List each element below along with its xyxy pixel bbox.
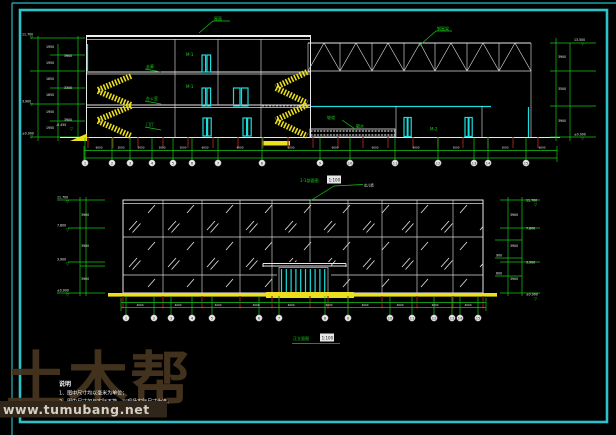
elevation-marker-icon: ▽	[534, 202, 538, 207]
dimension-text: 3900	[558, 55, 566, 59]
dimension-text: 4000	[326, 303, 333, 307]
drawing-title: 正立面图	[293, 335, 309, 341]
svg-text:10: 10	[348, 161, 353, 165]
cad-drawing: 1950 1950 1650 1650 1950 1950 3900 3300 …	[0, 0, 616, 435]
dimension-text: 6000	[202, 146, 209, 150]
dimension-text: 3500	[558, 87, 566, 91]
section-building	[60, 36, 560, 138]
svg-text:15: 15	[524, 161, 529, 165]
dimension-text: 3000	[502, 146, 509, 150]
dimension-text: 3000	[159, 146, 166, 150]
leader-label: M-1	[186, 52, 194, 57]
dimension-text: 4000	[253, 303, 260, 307]
dimension-text: 1950	[46, 126, 54, 130]
elevation-bottom-dimensions: 4000 4000 4000 4000 4000 4000 4000 4000 …	[121, 296, 486, 315]
svg-text:13: 13	[450, 316, 455, 320]
dimension-text: 1950	[46, 61, 54, 65]
elevation-axis-bubbles: 1 2 3 4 5 6 7 8 9 10 11 12 13 14 15	[123, 315, 481, 321]
dimension-text: 6000	[332, 146, 339, 150]
dimension-text: 1950	[46, 45, 54, 49]
leader-label: 屋面	[214, 15, 222, 21]
leader-label: 钢屋架	[437, 25, 449, 31]
level-text: 7.800	[57, 224, 66, 228]
dimension-text: 4000	[432, 303, 439, 307]
cad-viewport[interactable]: 1950 1950 1650 1650 1950 1950 3900 3300 …	[0, 0, 616, 435]
dimension-text: 3900	[510, 213, 518, 217]
dimension-text: 4000	[397, 303, 404, 307]
drawing-title: 1-1剖面图	[300, 177, 319, 183]
svg-text:15: 15	[476, 316, 481, 320]
section-axis-bubbles: 1 2 3 4 5 6 7 8 9 10 11 12 13 14 15	[82, 160, 529, 166]
dimension-text: 3900	[510, 277, 518, 281]
dimension-text: 3900	[558, 119, 566, 123]
elevation-right-dimension-chain: 3900 3900 3900 900 600 11.700 ▽ 7.800 3.…	[495, 197, 540, 301]
elevation-marker-icon: ▽	[30, 35, 34, 40]
scale-text: 1:100	[329, 178, 341, 183]
svg-text:3: 3	[129, 161, 131, 165]
svg-text:12: 12	[432, 316, 437, 320]
dimension-text: 3900	[64, 54, 72, 58]
svg-text:2: 2	[111, 161, 113, 165]
dimension-text: 3000	[453, 146, 460, 150]
section-bottom-dimensions: 6000 3000 3000 3000 3000 6000 6000 6000 …	[84, 138, 557, 163]
svg-text:13: 13	[472, 161, 477, 165]
level-text: 3.900	[526, 261, 535, 265]
leader-label: 散水	[356, 123, 364, 129]
scale-text: 1:100	[322, 336, 334, 341]
dimension-text: 4000	[362, 303, 369, 307]
leader-label: M-1	[186, 84, 194, 89]
leader-label: M-2	[430, 127, 438, 132]
svg-text:1: 1	[125, 316, 127, 320]
dimension-text: 3900	[510, 244, 518, 248]
section-title: 1-1剖面图 1:100	[300, 176, 341, 184]
dimension-text: 3900	[81, 244, 89, 248]
dimension-text: 4000	[465, 303, 472, 307]
level-text: 7.800	[526, 227, 535, 231]
svg-text:14: 14	[458, 316, 463, 320]
dimension-text: 4000	[175, 303, 182, 307]
dimension-text: 6000	[237, 146, 244, 150]
dimension-text: 3000	[118, 146, 125, 150]
dimension-text: 6000	[372, 146, 379, 150]
section-drawing: 1950 1950 1650 1650 1950 1950 3900 3300 …	[22, 15, 596, 184]
dimension-text: 1950	[46, 110, 54, 114]
dimension-text: 3900	[81, 213, 89, 217]
elevation-marker-icon: ▽	[70, 126, 74, 131]
section-left-dimension-chain: 1950 1950 1650 1650 1950 1950 3900 3300 …	[22, 33, 85, 142]
dimension-text: 3000	[180, 146, 187, 150]
elevation-left-dimension-chain: 3900 3900 3900 11.700 ▽ 7.800 ▽ 3.900 ▽ …	[57, 196, 105, 298]
notes-line: 1、图中尺寸均以毫米为单位；	[59, 390, 127, 397]
notes-heading: 说明	[59, 380, 71, 388]
section-leader-labels: 屋面 钢屋架 走廊 办公室 门厅 M-1 M-1 M-2 坡道 散水	[145, 15, 452, 132]
dimension-text: 3000	[138, 146, 145, 150]
dimension-text: 4000	[137, 303, 144, 307]
dimension-text: 1650	[46, 77, 54, 81]
dimension-text: 3300	[64, 86, 72, 90]
dimension-text: 4000	[215, 303, 222, 307]
section-doors	[202, 55, 472, 137]
svg-text:12: 12	[436, 161, 441, 165]
leader-label: 女儿墙	[364, 183, 374, 188]
level-text: 3.900	[57, 258, 66, 262]
svg-text:11: 11	[393, 161, 398, 165]
dimension-text: 600	[496, 272, 502, 276]
level-text: -0.450	[56, 123, 66, 127]
dimension-text: 4000	[288, 303, 295, 307]
hatched-walkway	[310, 129, 395, 137]
elevation-title: 正立面图 1:100	[292, 334, 340, 344]
svg-text:14: 14	[486, 161, 491, 165]
leader-label: 门厅	[146, 121, 154, 127]
roof-truss	[308, 43, 531, 137]
parapet-leader: 女儿墙	[310, 183, 374, 202]
dimension-text: 6000	[413, 146, 420, 150]
svg-text:2: 2	[153, 316, 155, 320]
elevation-marker-icon: ▽	[534, 296, 538, 301]
stair-right	[276, 72, 307, 136]
stair-left	[98, 76, 131, 136]
dimension-text: 1650	[46, 93, 54, 97]
dimension-text: 6000	[539, 146, 546, 150]
dimension-text: 900	[496, 254, 502, 258]
section-right-dimension-chain: 3900 3500 3900 13.500 ▽ ±0.000 ▽	[550, 38, 596, 141]
dimension-text: 3900	[81, 277, 89, 281]
watermark-url: www.tumubang.net	[0, 401, 167, 418]
svg-text:11: 11	[410, 316, 415, 320]
svg-text:1: 1	[84, 161, 86, 165]
elevation-drawing: 女儿墙 4000 4000 4000 4000 4000 4000 4000 4…	[57, 183, 540, 344]
svg-text:5: 5	[172, 161, 174, 165]
section-right-rooms	[310, 106, 529, 137]
dimension-text: 6000	[96, 146, 103, 150]
section-red-ticks	[88, 137, 538, 148]
svg-text:7: 7	[217, 161, 219, 165]
svg-text:7: 7	[278, 316, 280, 320]
watermark-url-text: www.tumubang.net	[3, 402, 150, 417]
dimension-text: 3900	[64, 118, 72, 122]
leader-label: 坡道	[327, 114, 335, 120]
svg-text:3: 3	[170, 316, 172, 320]
svg-text:10: 10	[388, 316, 393, 320]
leader-label: 办公室	[146, 95, 158, 101]
section-ground-yellow	[70, 134, 290, 146]
dimension-text: 6000	[288, 146, 295, 150]
svg-text:5: 5	[211, 316, 213, 320]
leader-label: 走廊	[146, 63, 154, 69]
